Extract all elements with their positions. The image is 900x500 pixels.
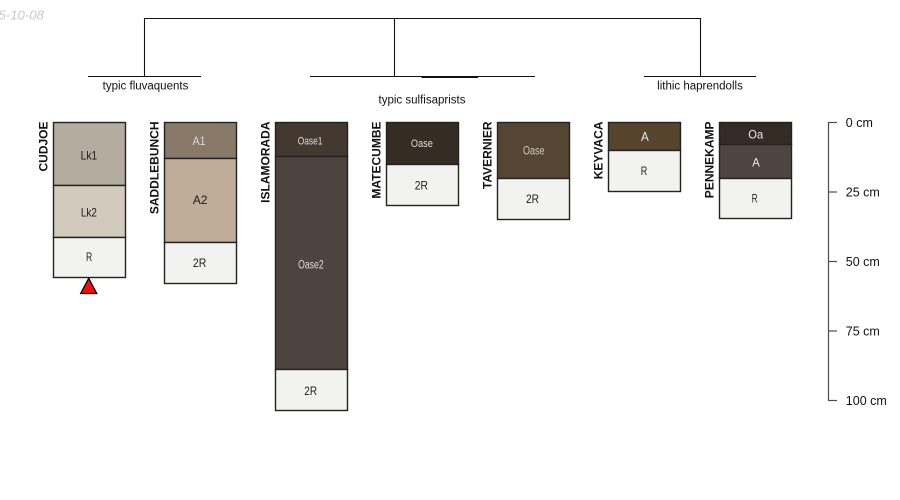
svg-text:50 cm: 50 cm [846, 255, 880, 269]
svg-text:Oa: Oa [748, 128, 763, 142]
svg-text:A2: A2 [193, 193, 208, 207]
svg-text:R: R [86, 250, 92, 264]
svg-text:2R: 2R [193, 256, 207, 270]
svg-text:5-10-08: 5-10-08 [0, 8, 45, 23]
svg-text:lithic haprendolls: lithic haprendolls [657, 81, 743, 93]
svg-text:A: A [641, 130, 649, 144]
svg-text:Oase1: Oase1 [298, 136, 323, 148]
svg-text:ISLAMORADA: ISLAMORADA [259, 121, 273, 203]
svg-text:R: R [752, 194, 758, 206]
svg-text:typic fluvaquents: typic fluvaquents [103, 81, 189, 93]
svg-text:75 cm: 75 cm [846, 325, 880, 339]
svg-text:CUDJOE: CUDJOE [37, 122, 51, 172]
svg-text:Lk1: Lk1 [81, 148, 98, 162]
svg-text:SADDLEBUNCH: SADDLEBUNCH [148, 122, 162, 215]
svg-text:2R: 2R [526, 192, 539, 206]
svg-text:TAVERNIER: TAVERNIER [481, 121, 495, 189]
svg-text:A1: A1 [193, 134, 206, 148]
svg-text:PENNEKAMP: PENNEKAMP [703, 122, 717, 199]
svg-text:100 cm: 100 cm [846, 394, 887, 408]
svg-text:KEYVACA: KEYVACA [592, 121, 606, 179]
svg-text:Lk2: Lk2 [81, 205, 97, 219]
svg-text:MATECUMBE: MATECUMBE [370, 122, 384, 199]
svg-text:2R: 2R [415, 178, 428, 192]
svg-text:Oase: Oase [523, 144, 545, 158]
svg-text:Oase2: Oase2 [298, 259, 324, 271]
svg-text:R: R [641, 166, 648, 178]
svg-text:typic sulfisaprists: typic sulfisaprists [379, 95, 466, 107]
svg-text:0 cm: 0 cm [846, 116, 873, 130]
svg-text:A: A [752, 155, 760, 169]
svg-text:25 cm: 25 cm [846, 186, 880, 200]
svg-text:Oase: Oase [411, 138, 433, 150]
svg-text:2R: 2R [304, 384, 317, 398]
